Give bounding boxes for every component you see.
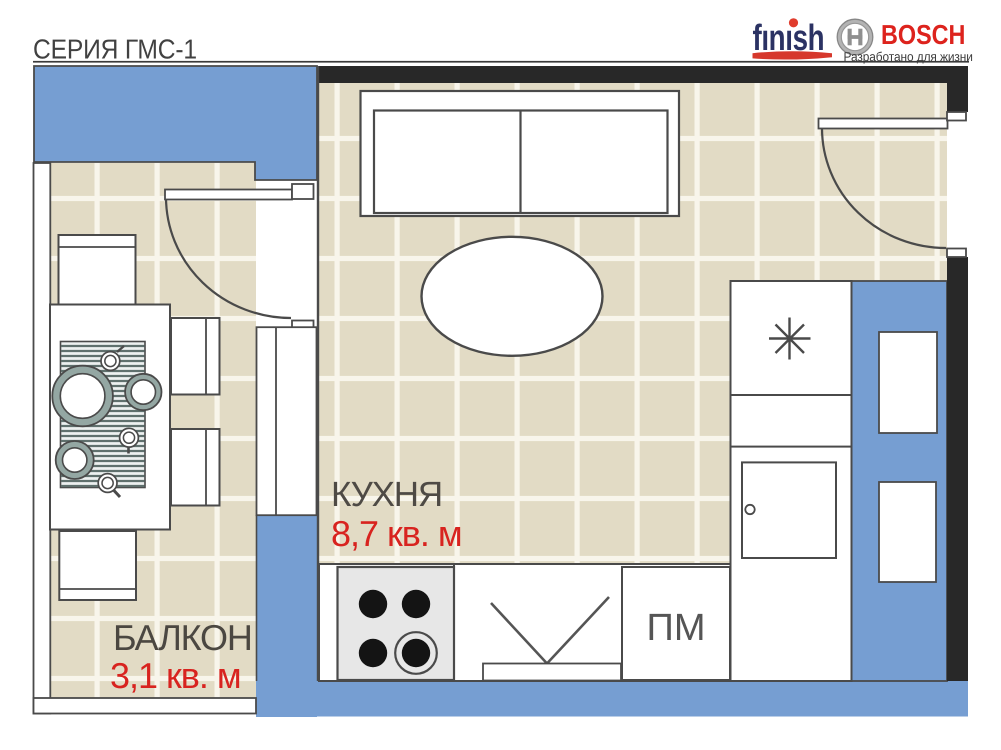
- svg-text:БАЛКОН: БАЛКОН: [113, 617, 252, 658]
- svg-text:СЕРИЯ ГМС-1: СЕРИЯ ГМС-1: [33, 34, 197, 65]
- svg-text:ПМ: ПМ: [647, 607, 706, 649]
- svg-text:Разработано для жизни: Разработано для жизни: [844, 49, 973, 64]
- svg-text:8,7 кв. м: 8,7 кв. м: [331, 513, 462, 554]
- svg-text:BOSCH: BOSCH: [881, 19, 965, 50]
- svg-text:3,1 кв. м: 3,1 кв. м: [110, 655, 241, 696]
- svg-text:КУХНЯ: КУХНЯ: [331, 475, 442, 514]
